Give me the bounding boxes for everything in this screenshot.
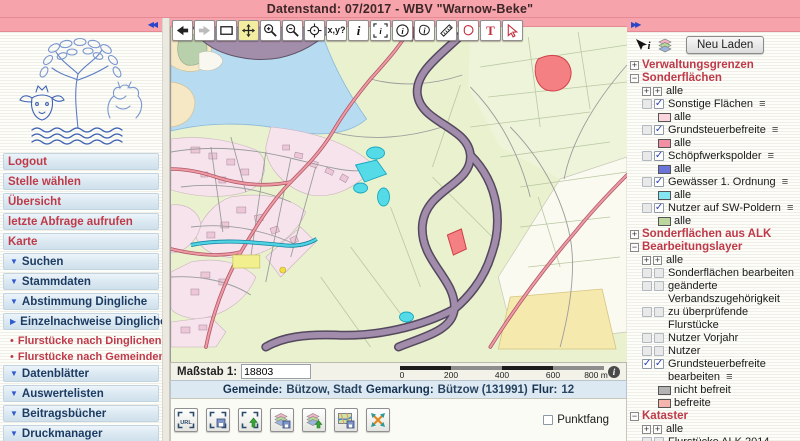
map-full-extent-button[interactable]	[366, 408, 390, 432]
tree-section-kataster: − Kataster	[630, 410, 800, 423]
forward-arrow-button[interactable]	[194, 20, 215, 41]
panel-collapse-bar: ▶▶	[627, 18, 800, 32]
layer-menu-icon[interactable]: ≡	[768, 150, 774, 162]
sidebar-item-uebersicht[interactable]: Übersicht	[3, 193, 159, 210]
layer-visible-checkbox[interactable]	[654, 346, 664, 356]
legend-swatch	[658, 165, 671, 174]
layer-query-checkbox[interactable]	[642, 151, 652, 161]
chevron-down-icon: ▼	[10, 410, 18, 418]
identify-cursor-icon[interactable]: i	[635, 38, 652, 52]
sidebar-menu: Logout Stelle wählen Übersicht letzte Ab…	[0, 150, 162, 441]
legend-row: alle	[630, 215, 800, 228]
reload-button[interactable]: Neu Laden	[686, 36, 764, 54]
gemarkung-value: Bützow (131991)	[438, 384, 528, 396]
sidebar-item-letzte-abfrage[interactable]: letzte Abfrage aufrufen	[3, 213, 159, 230]
layer-query-checkbox[interactable]	[642, 437, 652, 441]
punktfang-checkbox[interactable]	[543, 415, 553, 425]
sidebar-subitem-flurstuecke-gemeinden[interactable]: •Flurstücke nach Gemeinden	[2, 349, 160, 365]
layer-visible-checkbox[interactable]	[654, 437, 664, 441]
wbv-coat-of-arms-logo	[10, 36, 152, 146]
panel-icon-row: i Neu Laden	[627, 32, 800, 58]
scalebar: 0 200 400 600 800 m	[400, 364, 604, 379]
sidebar-item-logout[interactable]: Logout	[3, 153, 159, 170]
scalebar-info-icon[interactable]: i	[608, 366, 620, 378]
legend-swatch	[658, 217, 671, 226]
header-bar: Datenstand: 07/2017 - WBV "Warnow-Beke"	[0, 0, 800, 18]
zoom-in-button[interactable]	[260, 20, 281, 41]
center-crosshair-button[interactable]	[304, 20, 325, 41]
layer-query-checkbox[interactable]	[642, 125, 652, 135]
expander-minus-icon[interactable]: −	[630, 243, 639, 252]
expand-all-icon[interactable]: +	[642, 256, 651, 265]
page-title: Datenstand: 07/2017 - WBV "Warnow-Beke"	[267, 2, 533, 16]
map-image	[171, 27, 627, 362]
layer-visible-checkbox[interactable]: ✓	[654, 359, 664, 369]
gemarkung-label: Gemarkung:	[366, 384, 434, 396]
info-circle-button[interactable]: i	[392, 20, 413, 41]
layer-menu-icon[interactable]: ≡	[787, 202, 793, 214]
layer-query-checkbox[interactable]	[642, 268, 652, 278]
layers-save-button[interactable]	[270, 408, 294, 432]
sidebar-item-karte[interactable]: Karte	[3, 233, 159, 250]
legend-swatch	[658, 386, 671, 395]
measure-ruler-button[interactable]	[436, 20, 457, 41]
legend-swatch	[658, 399, 671, 408]
tree-layer-grundsteuerbefreite-bearbeiten: ✓ ✓ Grundsteuerbefreite bearbeiten ≡	[630, 358, 800, 384]
gemeinde-label: Gemeinde:	[223, 384, 282, 396]
map-yellow-parcel-large	[498, 289, 616, 349]
legend-row: nicht befreit	[630, 384, 800, 397]
tree-alle-row: + + alle	[630, 423, 800, 436]
legend-row: alle	[630, 111, 800, 124]
chevron-down-icon: ▼	[10, 258, 18, 266]
layer-query-checkbox[interactable]: ✓	[642, 359, 652, 369]
scale-bar-row: Maßstab 1: 0 200 400 600 800 m i	[170, 362, 627, 380]
sidebar-section-abstimmung-dingliche[interactable]: ▼Abstimmung Dingliche	[3, 293, 159, 310]
layer-visible-checkbox[interactable]	[654, 333, 664, 343]
legend-swatch	[658, 139, 671, 148]
logo-area	[0, 32, 162, 150]
sidebar-section-beitragsbuecher[interactable]: ▼Beitragsbücher	[3, 405, 159, 422]
select-arrow-button[interactable]	[502, 20, 523, 41]
map-area: x,y? i i i i T Maßstab 1: 0 200 400	[170, 18, 627, 441]
zoom-out-button[interactable]	[282, 20, 303, 41]
map-canvas[interactable]	[170, 27, 627, 362]
svg-text:i: i	[379, 26, 382, 36]
expand-all-icon[interactable]: +	[653, 256, 662, 265]
tree-layer-flurstuecke-alk-2014: Flurstücke ALK 2014	[630, 436, 800, 441]
layer-query-checkbox[interactable]	[642, 346, 652, 356]
chevron-right-icon: ▶	[10, 318, 16, 326]
punktfang-label: Punktfang	[557, 414, 609, 426]
sidebar-section-datenblaetter[interactable]: ▼Datenblätter	[3, 365, 159, 382]
tree-layer-nutzer: Nutzer	[630, 345, 800, 358]
tree-alle-row: + + alle	[630, 85, 800, 98]
extent-url-button[interactable]: URL	[174, 408, 198, 432]
layer-query-checkbox[interactable]	[642, 177, 652, 187]
svg-text:i: i	[401, 26, 404, 36]
tree-layer-zu-ueberpruefende-flurstuecke: zu überprüfende Flurstücke	[630, 306, 800, 332]
tree-layer-geaenderte-verbandszugehoerigkeit: geänderte Verbandszugehörigkeit	[630, 280, 800, 306]
extent-load-button[interactable]	[238, 408, 262, 432]
back-arrow-button[interactable]	[172, 20, 193, 41]
tree-layer-nutzer-auf-sw-poldern: ✓ Nutzer auf SW-Poldern ≡	[630, 202, 800, 215]
flur-label: Flur:	[532, 384, 558, 396]
legend-swatch	[658, 191, 671, 200]
layer-visible-checkbox[interactable]	[654, 307, 664, 317]
expand-all-icon[interactable]: +	[653, 87, 662, 96]
expander-plus-icon[interactable]: +	[630, 61, 639, 70]
full-extent-button[interactable]	[216, 20, 237, 41]
sidebar-collapse-bar: ◀◀	[0, 18, 162, 32]
legend-swatch	[658, 113, 671, 122]
layer-panel: ▶▶ i Neu Laden + Verwaltungsgrenzen − So…	[627, 18, 800, 441]
sidebar-section-druckmanager[interactable]: ▼Druckmanager	[3, 425, 159, 441]
expander-plus-icon[interactable]: +	[630, 230, 639, 239]
expander-minus-icon[interactable]: −	[630, 74, 639, 83]
sidebar-section-auswertelisten[interactable]: ▼Auswertelisten	[3, 385, 159, 402]
sidebar-subitem-flurstuecke-dinglichen[interactable]: •Flurstücke nach Dinglichen	[2, 333, 160, 349]
sidebar-section-stammdaten[interactable]: ▼Stammdaten	[3, 273, 159, 290]
chevron-down-icon: ▼	[10, 390, 18, 398]
tree-section-verwaltungsgrenzen: + Verwaltungsgrenzen	[630, 59, 800, 72]
tree-layer-sonderflaechen-bearbeiten: Sonderflächen bearbeiten	[630, 267, 800, 280]
sidebar-item-stelle-waehlen[interactable]: Stelle wählen	[3, 173, 159, 190]
layer-visible-checkbox[interactable]: ✓	[654, 177, 664, 187]
scalebar-ticks: 0 200 400 600 800 m	[400, 370, 604, 379]
scale-label: Maßstab 1:	[177, 366, 237, 378]
flur-value: 12	[561, 384, 574, 396]
map-save-button[interactable]	[334, 408, 358, 432]
legend-row: befreite	[630, 397, 800, 410]
layer-visible-checkbox[interactable]	[654, 281, 664, 291]
pan-tool-button[interactable]	[238, 20, 259, 41]
expand-all-icon[interactable]: +	[642, 87, 651, 96]
info-select-button[interactable]: i	[370, 20, 391, 41]
tree-layer-grundsteuerbefreite: ✓ Grundsteuerbefreite ≡	[630, 124, 800, 137]
tree-layer-gewaesser-1-ordnung: ✓ Gewässer 1. Ordnung ≡	[630, 176, 800, 189]
collapse-sidebar-icon[interactable]: ◀◀	[148, 21, 156, 29]
layers-icon[interactable]	[657, 37, 673, 53]
map-status-bar: Gemeinde: Bützow, Stadt Gemarkung: Bützo…	[170, 380, 627, 398]
layers-load-button[interactable]	[302, 408, 326, 432]
scale-input[interactable]	[241, 364, 311, 379]
bullet-icon: •	[10, 352, 14, 363]
layer-query-checkbox[interactable]	[642, 99, 652, 109]
layer-visible-checkbox[interactable]: ✓	[654, 125, 664, 135]
layer-visible-checkbox[interactable]: ✓	[654, 99, 664, 109]
application-window: Datenstand: 07/2017 - WBV "Warnow-Beke" …	[0, 0, 800, 441]
expand-panel-icon[interactable]: ▶▶	[631, 21, 639, 29]
info-polygon-button[interactable]: i	[414, 20, 435, 41]
chevron-down-icon: ▼	[10, 370, 18, 378]
info-button[interactable]: i	[348, 20, 369, 41]
layer-menu-icon[interactable]: ≡	[726, 371, 732, 383]
tree-alle-row: + + alle	[630, 254, 800, 267]
layer-query-checkbox[interactable]	[642, 307, 652, 317]
svg-text:URL: URL	[180, 420, 192, 426]
tree-section-sonderflaechen-aus-alk: + Sonderflächen aus ALK	[630, 228, 800, 241]
sidebar: ◀◀	[0, 18, 162, 441]
expand-all-icon[interactable]: +	[642, 425, 651, 434]
layer-visible-checkbox[interactable]: ✓	[654, 203, 664, 213]
layer-visible-checkbox[interactable]	[654, 268, 664, 278]
gemeinde-value: Bützow, Stadt	[286, 384, 362, 396]
tree-layer-sonstige-flaechen: ✓ Sonstige Flächen ≡	[630, 98, 800, 111]
punktfang-control: Punktfang	[543, 414, 609, 426]
tree-layer-nutzer-vorjahr: Nutzer Vorjahr	[630, 332, 800, 345]
bullet-icon: •	[10, 336, 14, 347]
map-toolbar: x,y? i i i i T	[172, 20, 523, 41]
chevron-down-icon: ▼	[10, 430, 18, 438]
extent-save-button[interactable]	[206, 408, 230, 432]
sidebar-splitter[interactable]	[162, 18, 170, 441]
layer-tree: + Verwaltungsgrenzen − Sonderflächen + +…	[627, 58, 800, 441]
coordinates-query-button[interactable]: x,y?	[326, 20, 347, 41]
legend-row: alle	[630, 163, 800, 176]
text-tool-button[interactable]: T	[480, 20, 501, 41]
expander-minus-icon[interactable]: −	[630, 412, 639, 421]
layer-query-checkbox[interactable]	[642, 333, 652, 343]
tree-section-bearbeitungslayer: − Bearbeitungslayer	[630, 241, 800, 254]
layer-query-checkbox[interactable]	[642, 203, 652, 213]
layer-visible-checkbox[interactable]: ✓	[654, 151, 664, 161]
sidebar-section-suchen[interactable]: ▼Suchen	[3, 253, 159, 270]
legend-row: alle	[630, 137, 800, 150]
expand-all-icon[interactable]: +	[653, 425, 662, 434]
chevron-down-icon: ▼	[10, 278, 18, 286]
measure-area-polygon-button[interactable]	[458, 20, 479, 41]
legend-row: alle	[630, 189, 800, 202]
svg-text:i: i	[647, 40, 651, 52]
layer-query-checkbox[interactable]	[642, 281, 652, 291]
chevron-down-icon: ▼	[10, 298, 18, 306]
layer-menu-icon[interactable]: ≡	[772, 124, 778, 136]
tree-layer-schoepfwerkspolder: ✓ Schöpfwerkspolder ≡	[630, 150, 800, 163]
tree-section-sonderflaechen: − Sonderflächen	[630, 72, 800, 85]
bottom-toolbar: URL Punktfang	[170, 398, 627, 441]
sidebar-section-einzelnachweise-dingliche[interactable]: ▶Einzelnachweise Dingliche	[3, 313, 159, 330]
layer-menu-icon[interactable]: ≡	[782, 176, 788, 188]
layer-menu-icon[interactable]: ≡	[759, 98, 765, 110]
